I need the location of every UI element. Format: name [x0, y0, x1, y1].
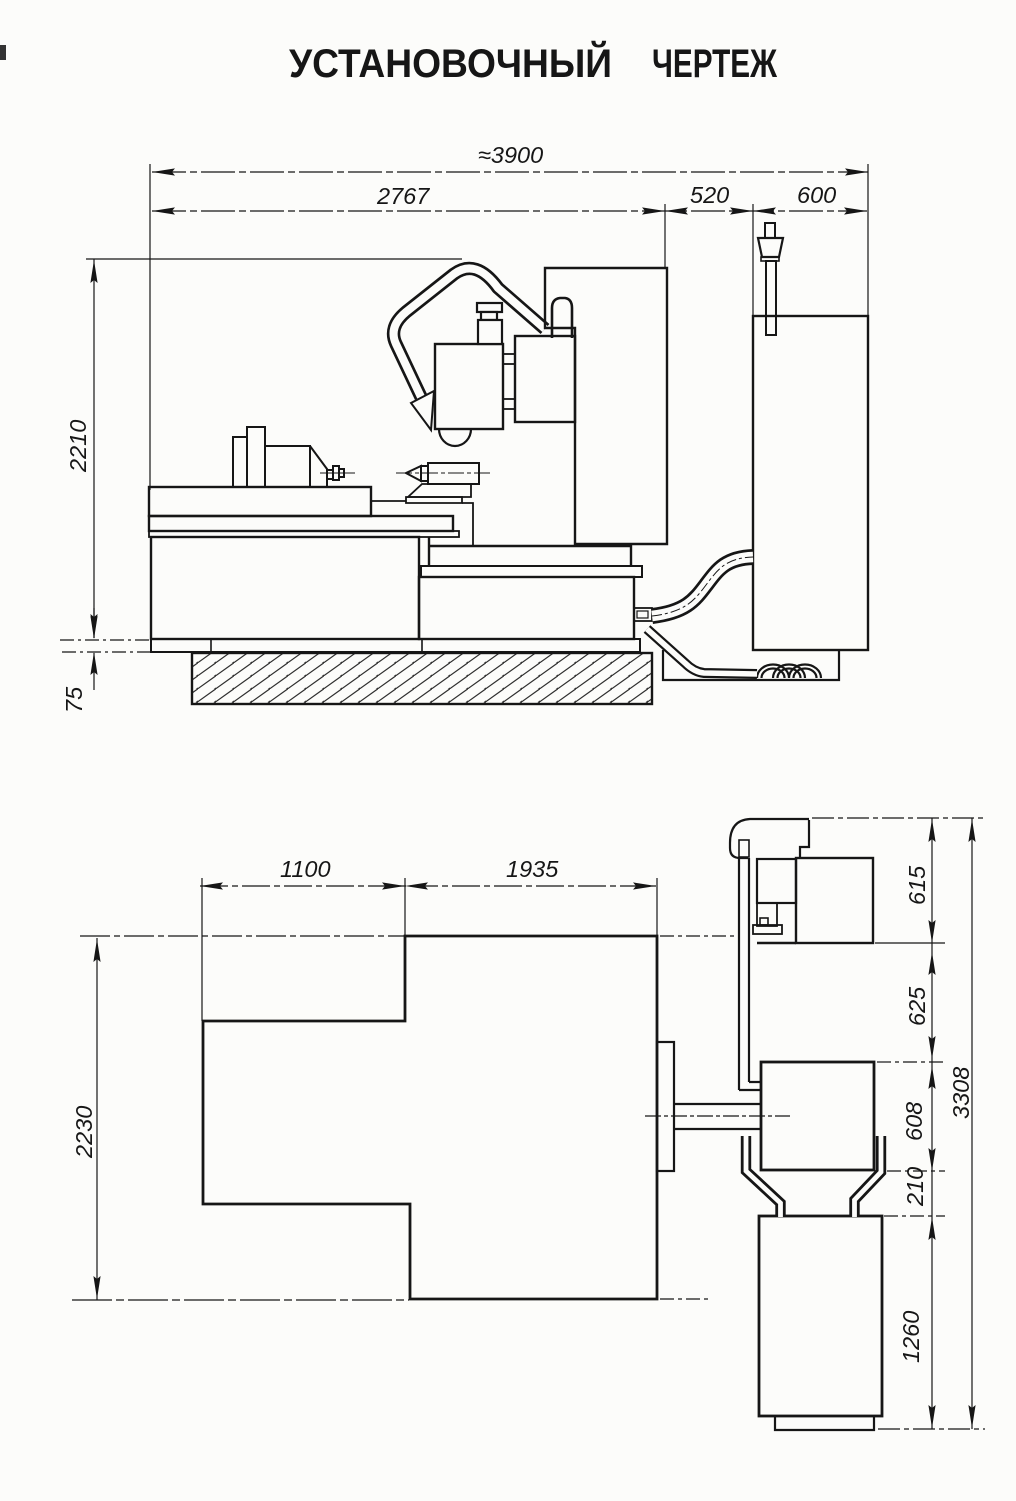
svg-text:1935: 1935 [506, 856, 559, 882]
svg-text:2210: 2210 [65, 420, 91, 473]
svg-text:625: 625 [904, 986, 930, 1026]
svg-text:1100: 1100 [280, 856, 331, 882]
svg-text:75: 75 [61, 686, 87, 713]
svg-text:520: 520 [690, 182, 729, 208]
svg-text:УСТАНОВОЧНЫЙ: УСТАНОВОЧНЫЙ [289, 40, 612, 86]
svg-text:≈3900: ≈3900 [478, 142, 543, 168]
svg-text:2230: 2230 [71, 1106, 97, 1159]
svg-text:608: 608 [901, 1102, 927, 1141]
svg-text:615: 615 [904, 865, 930, 905]
svg-text:1260: 1260 [898, 1311, 924, 1363]
svg-text:210: 210 [902, 1167, 928, 1207]
svg-text:2767: 2767 [376, 183, 430, 209]
svg-text:3308: 3308 [948, 1067, 974, 1119]
svg-text:ЧЕРТЕЖ: ЧЕРТЕЖ [652, 42, 778, 86]
svg-text:600: 600 [797, 182, 836, 208]
